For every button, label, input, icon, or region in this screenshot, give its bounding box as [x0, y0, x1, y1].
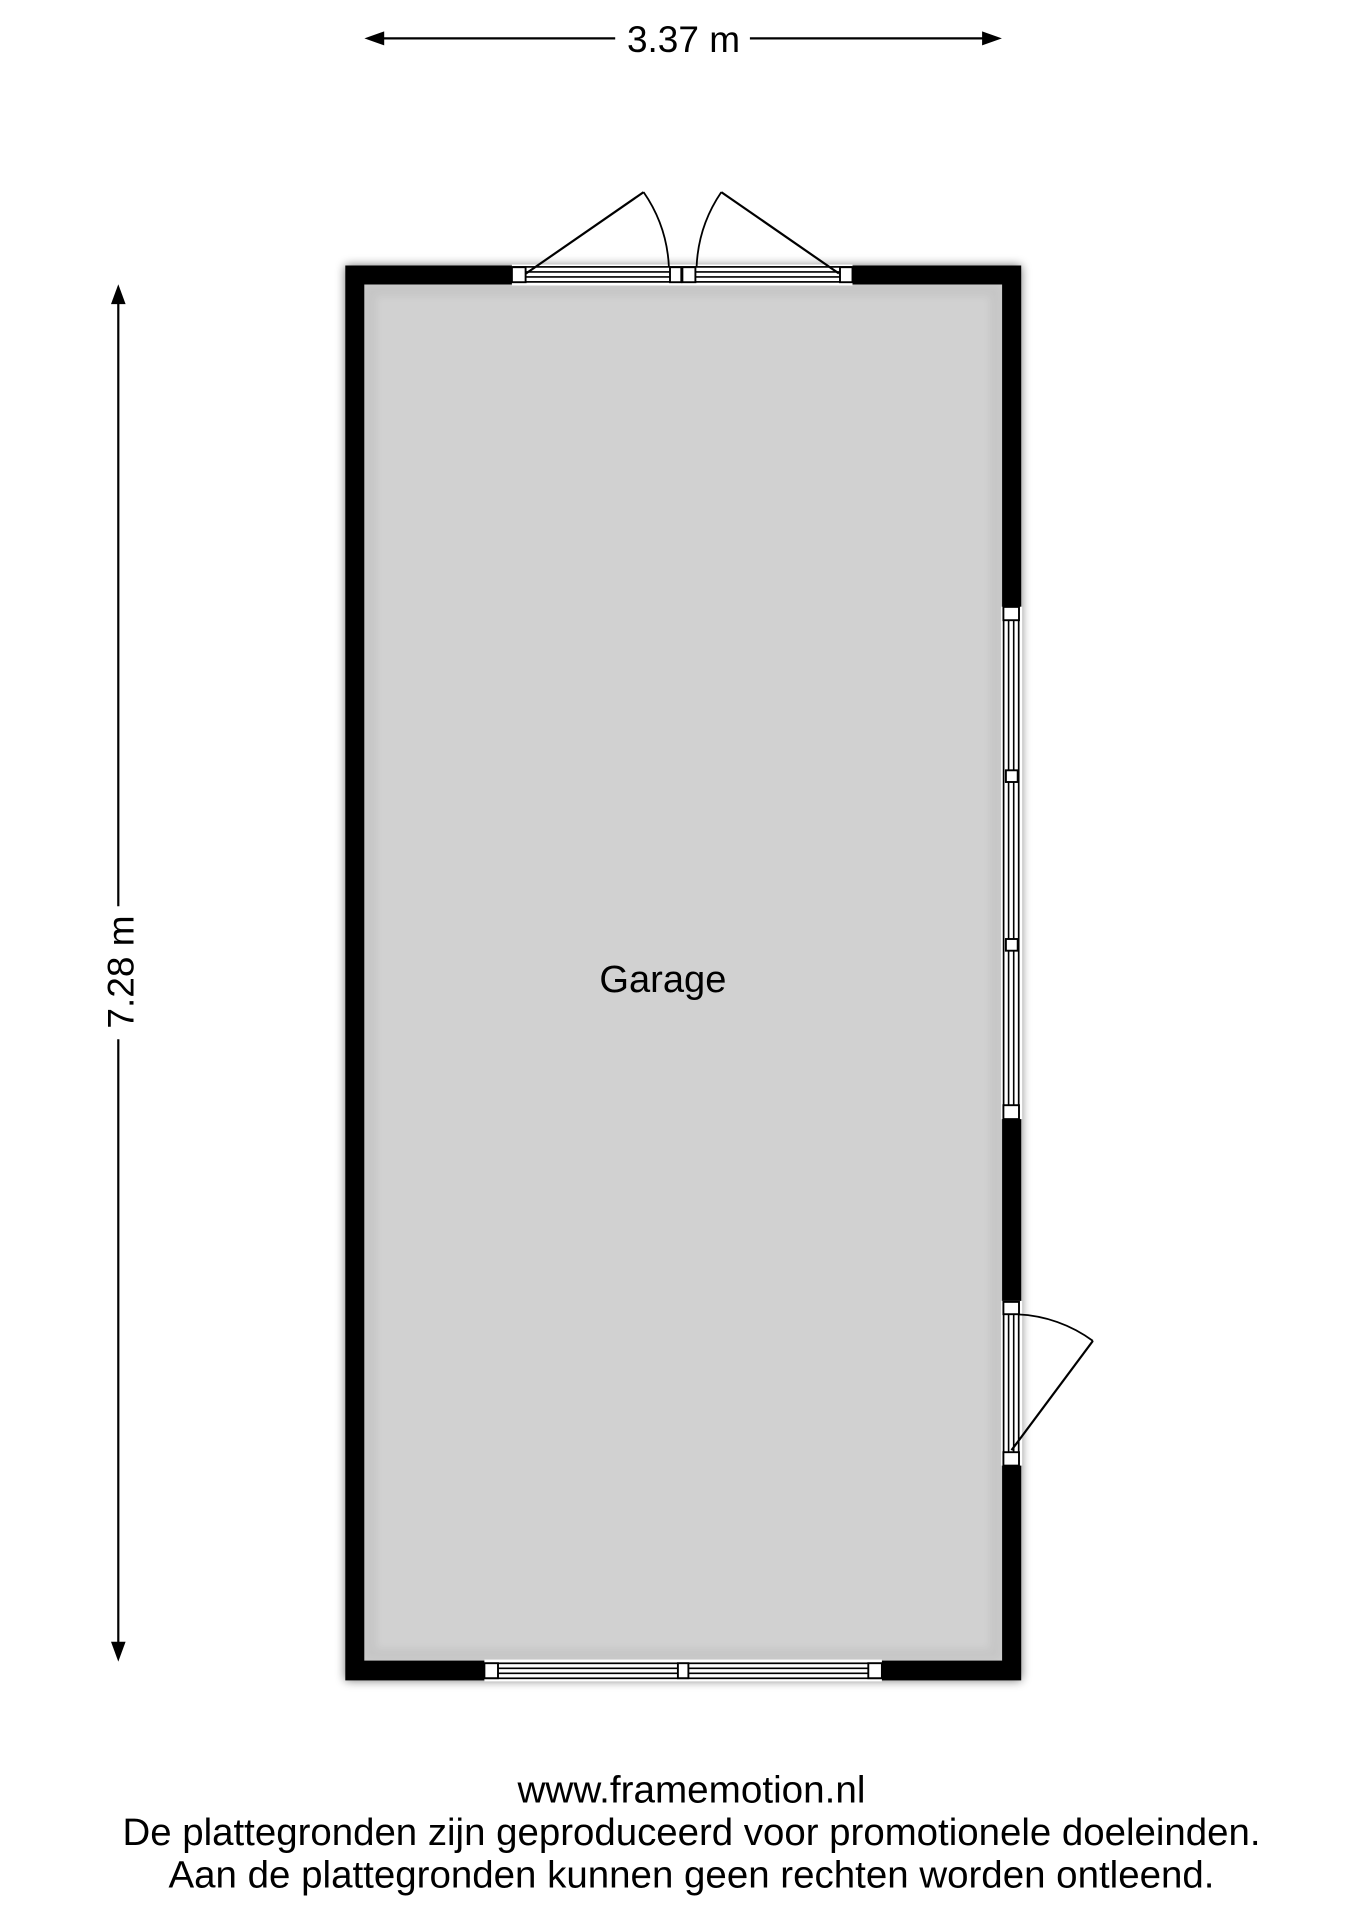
svg-text:Aan de plattegronden kunnen ge: Aan de plattegronden kunnen geen rechten…	[169, 1855, 1215, 1897]
svg-text:7.28 m: 7.28 m	[101, 915, 142, 1028]
svg-text:3.37 m: 3.37 m	[627, 19, 740, 60]
svg-text:www.framemotion.nl: www.framemotion.nl	[516, 1769, 865, 1811]
svg-text:Garage: Garage	[599, 959, 726, 1001]
svg-text:De plattegronden zijn geproduc: De plattegronden zijn geproduceerd voor …	[123, 1812, 1261, 1854]
